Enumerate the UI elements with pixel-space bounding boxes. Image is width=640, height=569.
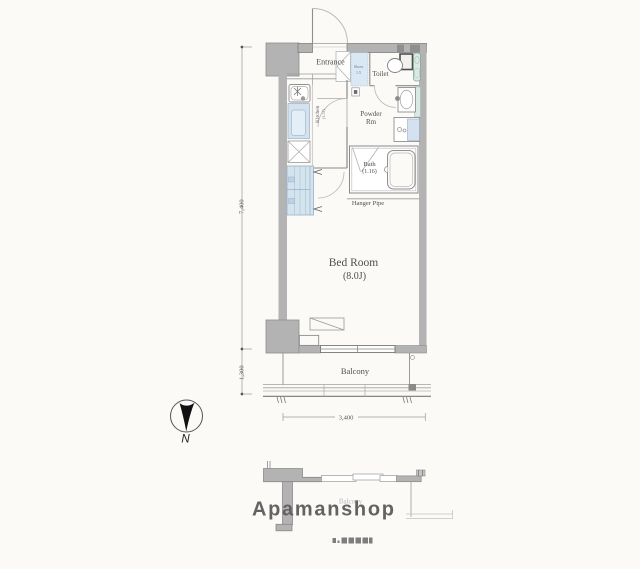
- svg-text:(1.5J): (1.5J): [321, 109, 326, 119]
- svg-text:Hanger Pipe: Hanger Pipe: [352, 200, 384, 207]
- svg-text:Bed Room: Bed Room: [329, 257, 379, 269]
- svg-text:Shoes: Shoes: [354, 64, 364, 69]
- svg-text:1.5: 1.5: [356, 70, 361, 75]
- svg-text:3,400: 3,400: [339, 415, 354, 422]
- svg-text:(8.0J): (8.0J): [343, 271, 366, 282]
- svg-text:Toilet: Toilet: [372, 70, 388, 78]
- svg-text:Powder: Powder: [360, 110, 382, 118]
- svg-text:(1.16): (1.16): [362, 168, 377, 175]
- svg-text:Entrance: Entrance: [316, 58, 345, 67]
- svg-text:Apamanshop: Apamanshop: [252, 499, 396, 521]
- svg-text:7,400: 7,400: [239, 199, 246, 214]
- svg-text:Balcony: Balcony: [341, 366, 370, 376]
- svg-text:1,300: 1,300: [239, 365, 246, 380]
- svg-text:Rm: Rm: [366, 118, 377, 126]
- svg-text:Bath: Bath: [363, 161, 376, 168]
- svg-text:N: N: [181, 434, 190, 446]
